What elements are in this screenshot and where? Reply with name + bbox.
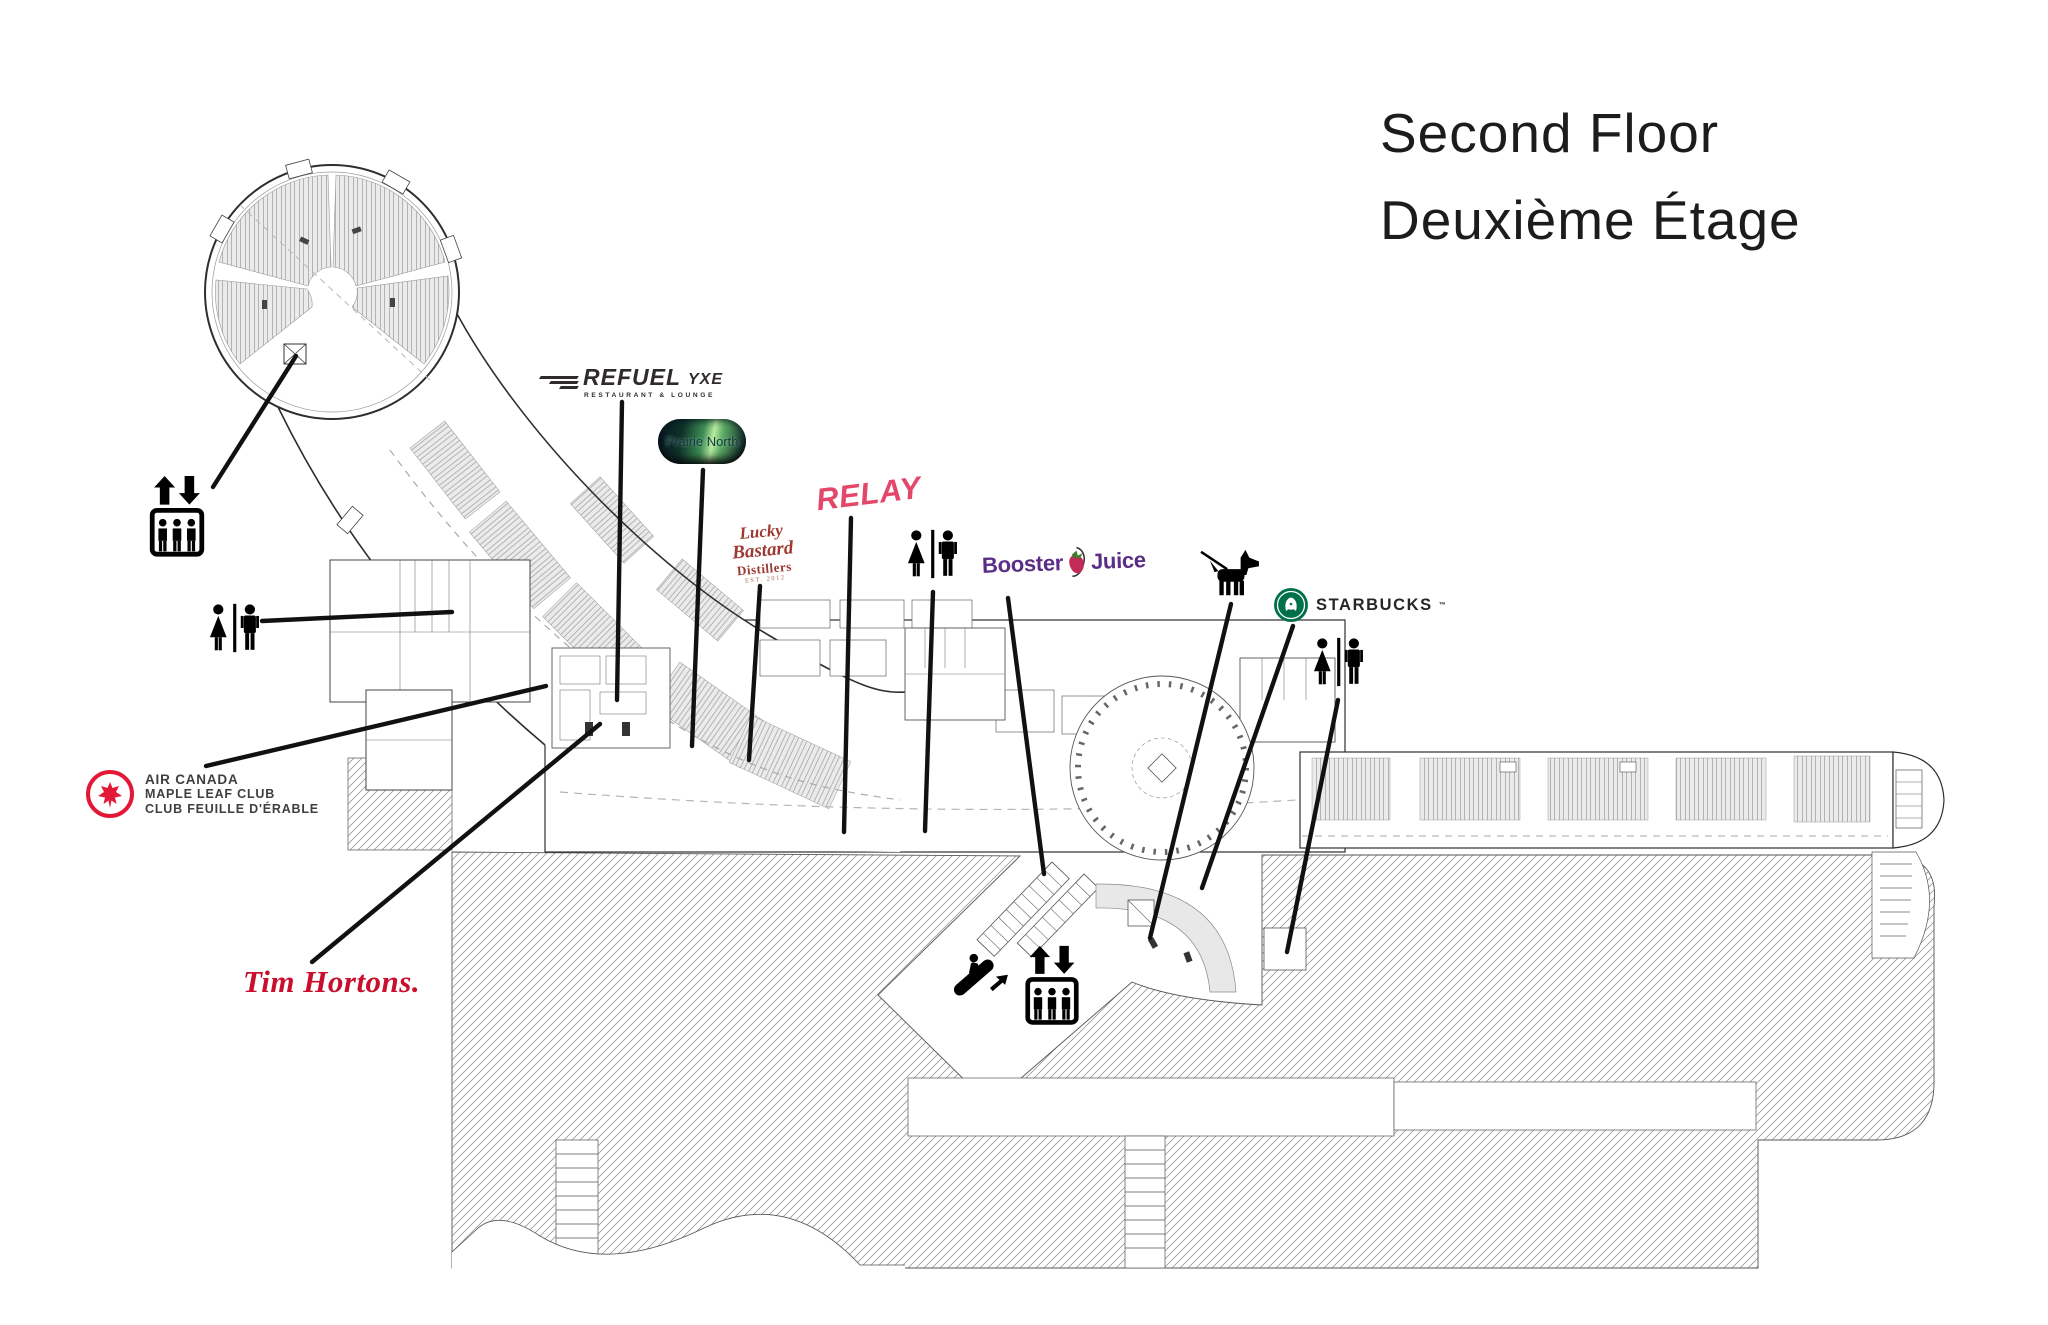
rotunda (205, 159, 462, 419)
tim-hortons-logo: Tim Hortons. (243, 964, 420, 1000)
refuel-wing-icon (540, 373, 578, 389)
starbucks-siren-icon (1272, 586, 1310, 624)
washroom-icon (908, 530, 957, 578)
title-line-en: Second Floor (1380, 90, 1801, 177)
pet-relief-icon (1201, 550, 1259, 595)
booster-juice-logo: Booster Juice (981, 543, 1146, 583)
air-canada-line3: CLUB FEUILLE D'ÉRABLE (145, 802, 319, 817)
elevator-icon (1028, 946, 1077, 1023)
air-canada-roundel-icon (84, 768, 136, 820)
east-concourse (1300, 752, 1944, 848)
floor-plan-page: Second Floor Deuxième Étage REFUEL RESTA… (0, 0, 2048, 1325)
starbucks-logo: STARBUCKS™ (1272, 586, 1446, 624)
booster-word1: Booster (982, 550, 1064, 579)
starbucks-name: STARBUCKS (1316, 596, 1433, 615)
refuel-yxe-label: YXE (688, 371, 723, 389)
refuel-name: REFUEL (583, 366, 681, 389)
air-canada-logo: AIR CANADA MAPLE LEAF CLUB CLUB FEUILLE … (84, 768, 319, 820)
title-line-fr: Deuxième Étage (1380, 177, 1801, 264)
starbucks-tm: ™ (1439, 602, 1446, 609)
prairie-north-name: Prairie North (666, 434, 739, 449)
washroom-icon (1314, 638, 1363, 686)
booster-word2: Juice (1091, 547, 1147, 575)
page-title: Second Floor Deuxième Étage (1380, 90, 1801, 264)
air-canada-line1: AIR CANADA (145, 772, 319, 787)
elevator-icon (152, 476, 202, 554)
air-canada-line2: MAPLE LEAF CLUB (145, 787, 319, 802)
prairie-north-logo: Prairie North (658, 419, 746, 464)
escalator-icon (960, 954, 1008, 990)
food-court-counter (1096, 884, 1236, 992)
strawberry-icon (1063, 545, 1090, 580)
lucky-bastard-logo: Lucky Bastard Distillers EST. 2012 (708, 518, 819, 588)
atrium-ring (1070, 676, 1254, 860)
washroom-icon (210, 604, 259, 652)
refuel-tagline: RESTAURANT & LOUNGE (584, 392, 715, 399)
